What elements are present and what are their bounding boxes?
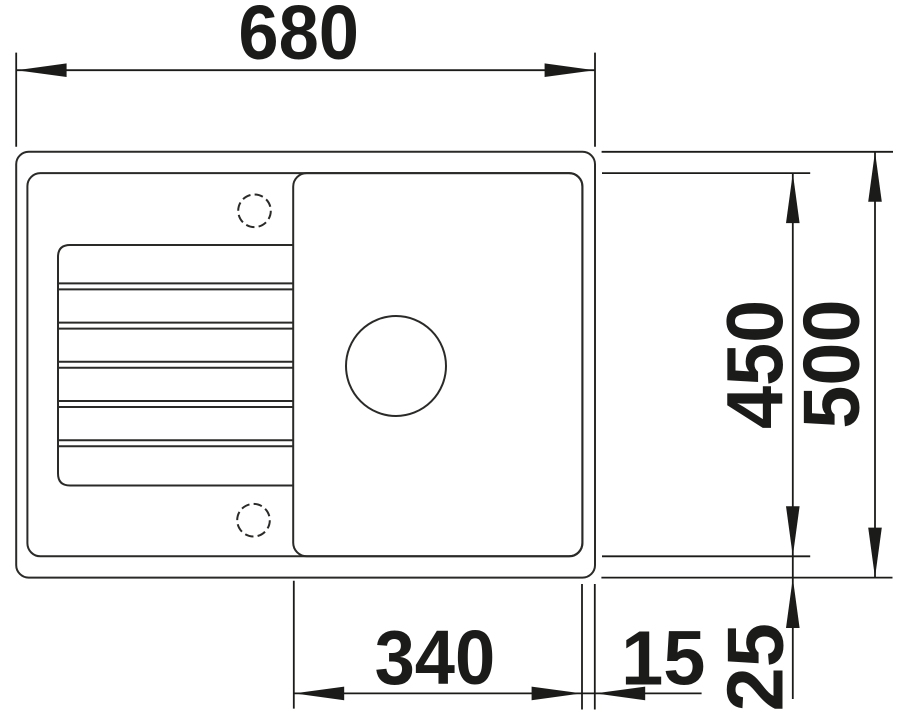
svg-text:500: 500 (787, 299, 876, 428)
svg-text:15: 15 (621, 616, 705, 702)
svg-text:680: 680 (238, 0, 359, 75)
svg-text:340: 340 (375, 614, 496, 701)
svg-text:450: 450 (710, 300, 799, 429)
svg-text:25: 25 (710, 623, 799, 711)
